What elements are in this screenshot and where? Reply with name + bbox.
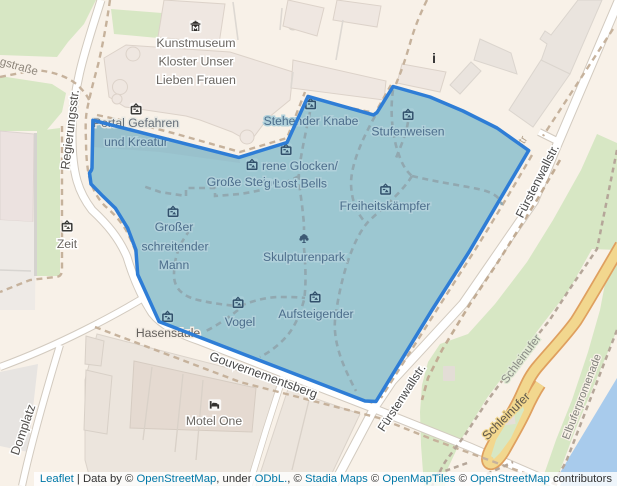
svg-text:Motel One: Motel One xyxy=(186,414,242,428)
svg-text:Zeit: Zeit xyxy=(57,237,78,251)
svg-text:Stehender Knabe: Stehender Knabe xyxy=(264,114,359,128)
svg-text:g Lost Bells: g Lost Bells xyxy=(264,177,327,191)
svg-text:Skulpturenpark: Skulpturenpark xyxy=(263,250,346,264)
svg-text:Mann: Mann xyxy=(159,258,190,272)
svg-text:schreitender: schreitender xyxy=(141,240,208,254)
svg-text:Aufsteigender: Aufsteigender xyxy=(278,307,353,321)
svg-text:Kunstmuseum: Kunstmuseum xyxy=(156,36,235,50)
svg-text:i: i xyxy=(432,51,436,66)
svg-text:Stufenweisen: Stufenweisen xyxy=(371,125,444,139)
svg-text:rene Glocken/: rene Glocken/ xyxy=(262,159,338,173)
svg-text:Vogel: Vogel xyxy=(225,315,256,329)
svg-text:Großer: Großer xyxy=(155,220,194,234)
svg-text:Kloster Unser: Kloster Unser xyxy=(158,55,233,69)
svg-text:Freiheitskämpfer: Freiheitskämpfer xyxy=(340,199,431,213)
svg-text:Lieben Frauen: Lieben Frauen xyxy=(156,73,236,87)
